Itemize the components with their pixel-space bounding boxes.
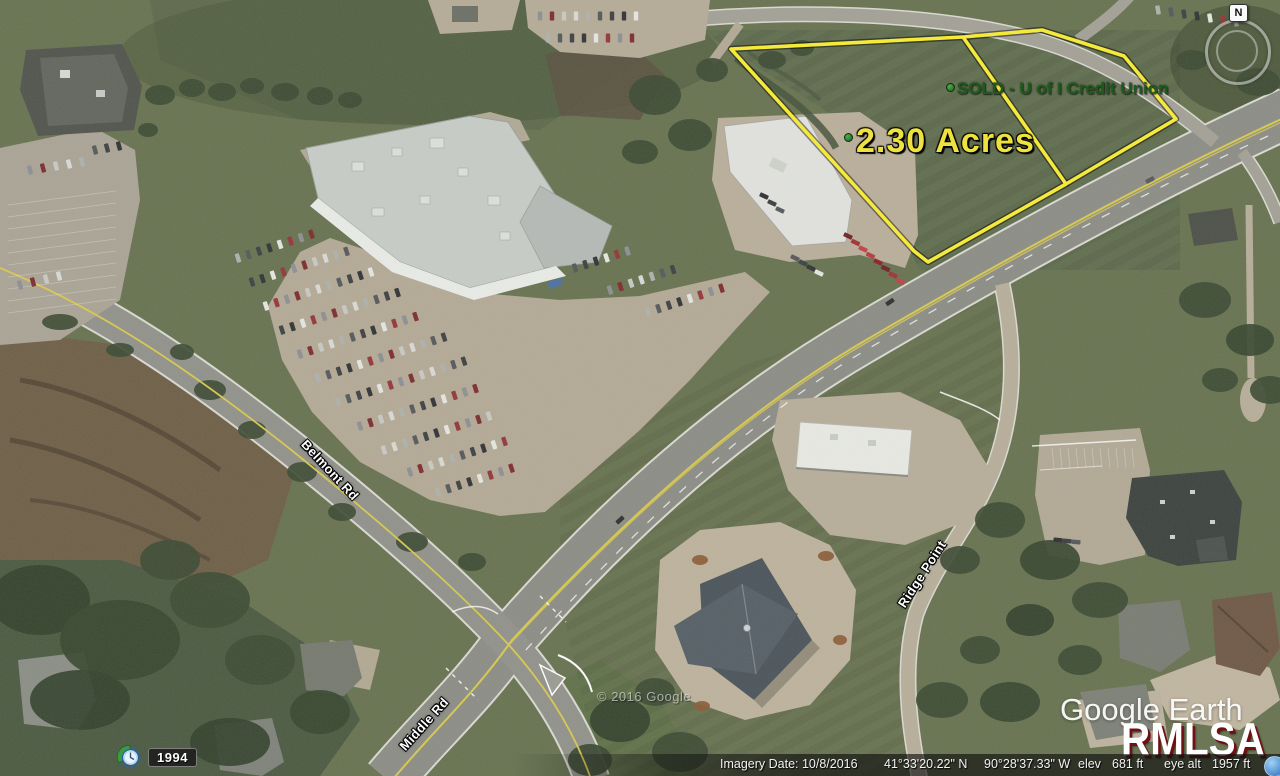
elevation-value: 681 ft [1112,757,1143,771]
satellite-imagery[interactable] [0,0,1280,776]
google-earth-viewport[interactable]: Belmont Rd Middle Rd Ridge Point SOLD - … [0,0,1280,776]
status-bar: Imagery Date: 10/8/2016 41°33'20.22" N 9… [0,754,1280,776]
eye-altitude-value: 1957 ft [1212,757,1250,771]
north-indicator[interactable]: N [1229,4,1248,22]
compass[interactable]: N [1205,19,1271,85]
elevation-label: elev [1078,757,1101,771]
acreage-label: 2.30 Acres [856,122,1035,161]
longitude-readout: 90°28'37.33" W [984,757,1070,771]
blue-peg-icon[interactable] [1264,756,1280,776]
latitude-readout: 41°33'20.22" N [884,757,967,771]
sold-parcel-label: SOLD - U of I Credit Union [957,79,1169,99]
placemark-icon[interactable] [946,83,955,92]
compass-inner-ring-icon [1216,30,1258,72]
copyright-watermark: © 2016 Google [597,689,691,704]
photo-grain [0,0,1280,776]
imagery-date: Imagery Date: 10/8/2016 [720,757,858,771]
eye-altitude-label: eye alt [1164,757,1201,771]
placemark-icon[interactable] [844,133,853,142]
